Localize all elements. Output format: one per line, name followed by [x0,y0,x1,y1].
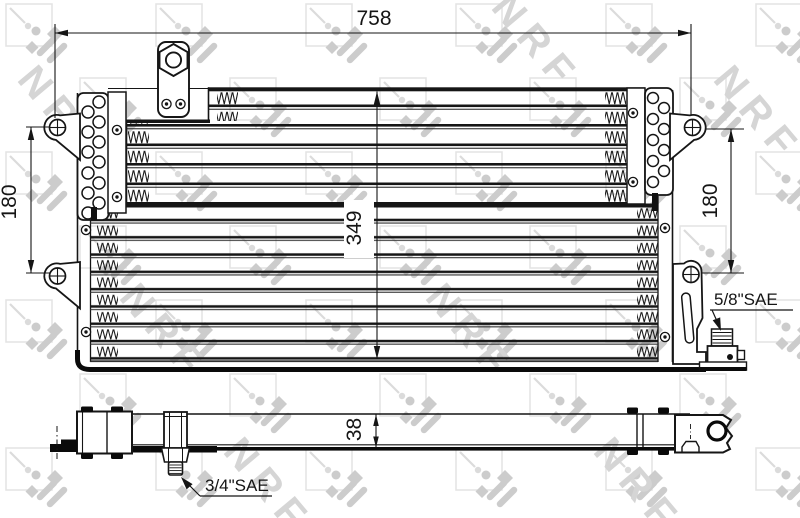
left-header-plate [108,92,126,213]
dim-height-right-label: 180 [699,183,722,218]
left-mount-bracket [78,93,109,220]
fin-hatch [637,208,658,360]
fin-hatch [128,121,149,204]
core-top-rows [209,92,627,122]
dim-height-left-label: 180 [0,184,21,219]
fin-hatch [217,92,238,122]
pipe-port [708,422,726,440]
dim-core-height-label: 349 [343,210,366,245]
right-header-plate [627,88,645,204]
dim-depth-label: 38 [343,418,366,441]
label-upper-fitting-text: 5/8"SAE [714,290,778,309]
dim-overall-width-label: 758 [356,7,391,30]
label-lower-fitting-text: 3/4"SAE [205,476,269,495]
fin-hatch [605,121,626,204]
fin-hatch [605,92,626,122]
top-hanger-bracket [158,42,189,117]
side-left-tank [77,407,132,460]
right-mount-bracket [645,88,673,211]
condenser-technical-drawing: NRF NRF NRF NRF NRF NRF NRF [0,0,800,518]
fin-hatch [97,208,118,360]
